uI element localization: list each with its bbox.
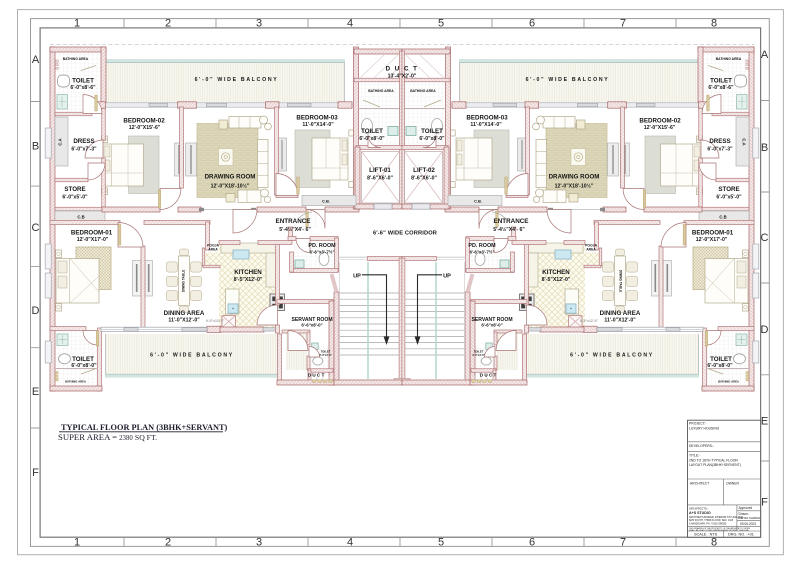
svg-text:2: 2	[165, 537, 171, 549]
svg-text:12'-0"X18'-10½": 12'-0"X18'-10½"	[555, 183, 594, 190]
svg-text:E: E	[32, 386, 39, 398]
svg-text:DRAWING ROOM: DRAWING ROOM	[549, 174, 600, 181]
svg-text:6'-0" WIDE BALCONY: 6'-0" WIDE BALCONY	[150, 353, 234, 359]
svg-text:TOILET: TOILET	[421, 128, 443, 135]
svg-text:LAYOUT PLAN(3BHK+SERVENT): LAYOUT PLAN(3BHK+SERVENT)	[689, 463, 741, 467]
svg-text:8'-5"X12'-0": 8'-5"X12'-0"	[542, 277, 571, 283]
svg-text:6'-0" WIDE BALCONY: 6'-0" WIDE BALCONY	[570, 353, 654, 359]
svg-text:ARCHITECTS:-: ARCHITECTS:-	[689, 506, 709, 510]
svg-text:BATHING AREA: BATHING AREA	[63, 57, 89, 61]
svg-text:ARCHITECT: ARCHITECT	[690, 481, 709, 485]
svg-text:OWNER: OWNER	[726, 481, 739, 485]
svg-text:DRESS: DRESS	[73, 138, 94, 145]
svg-text:PD. ROOM: PD. ROOM	[308, 243, 336, 249]
svg-text:BEDROOM-03: BEDROOM-03	[296, 115, 338, 122]
svg-text:1: 1	[74, 537, 80, 549]
svg-text:A: A	[32, 54, 40, 66]
svg-text:TOILET: TOILET	[710, 78, 732, 85]
svg-text:POOJA: POOJA	[585, 244, 597, 248]
svg-text:12'-0"X15'-6": 12'-0"X15'-6"	[129, 125, 161, 131]
svg-text:C.B: C.B	[77, 215, 84, 220]
svg-text:BEDROOM-02: BEDROOM-02	[639, 118, 681, 125]
svg-text:BATHING AREA: BATHING AREA	[65, 379, 86, 383]
svg-text:7: 7	[620, 537, 626, 549]
svg-text:TOILET: TOILET	[72, 356, 94, 363]
svg-text:6'-0"x7'-3": 6'-0"x7'-3"	[71, 147, 97, 153]
svg-text:DEVELOPERS:-: DEVELOPERS:-	[689, 444, 714, 448]
svg-text:SCALE : NTS: SCALE : NTS	[694, 533, 718, 537]
svg-text:13'-4"X2'-0": 13'-4"X2'-0"	[388, 74, 417, 80]
svg-text:AREA: AREA	[208, 248, 218, 252]
svg-text:D U C T: D U C T	[480, 373, 497, 378]
svg-text:7: 7	[620, 18, 626, 30]
svg-text:PROJECT:-: PROJECT:-	[689, 422, 706, 426]
svg-text:BATHING AREA: BATHING AREA	[410, 89, 436, 93]
svg-text:5: 5	[438, 537, 444, 549]
svg-text:3: 3	[256, 18, 262, 30]
svg-text:BEDROOM-03: BEDROOM-03	[466, 115, 508, 122]
svg-text:C.A: C.A	[742, 138, 747, 145]
svg-text:6'-0"x8'-6": 6'-0"x8'-6"	[70, 85, 96, 91]
svg-text:KITCHEN: KITCHEN	[542, 269, 570, 276]
svg-text:TOILET: TOILET	[361, 128, 383, 135]
svg-text:11'-0"X14'-0": 11'-0"X14'-0"	[470, 122, 502, 128]
svg-text:B/25 SOUTH, THIRD FLOOR, SEC.: B/25 SOUTH, THIRD FLOOR, SEC. 19-B	[689, 519, 733, 522]
svg-text:6'-0"x8'-6": 6'-0"x8'-6"	[708, 85, 734, 91]
svg-text:11'-0"X12'-0": 11'-0"X12'-0"	[168, 317, 200, 323]
svg-text:LIFT-02: LIFT-02	[413, 167, 435, 174]
svg-text:12'-0"X18'-10½": 12'-0"X18'-10½"	[211, 183, 250, 190]
svg-text:6'-0"x8'-0": 6'-0"x8'-0"	[71, 363, 97, 369]
svg-text:D U C T: D U C T	[386, 66, 419, 73]
svg-text:Drawn:: Drawn:	[739, 512, 749, 516]
svg-text:09.06.2023: 09.06.2023	[740, 522, 756, 526]
svg-text:6'-0"x7'-3": 6'-0"x7'-3"	[707, 147, 733, 153]
svg-text:6'-0"x5'-0": 6'-0"x5'-0"	[716, 195, 742, 201]
svg-text:POOJA: POOJA	[207, 244, 219, 248]
svg-text:D U C T: D U C T	[308, 373, 325, 378]
svg-text:6'-6" WIDE CORRIDOR: 6'-6" WIDE CORRIDOR	[373, 231, 437, 237]
svg-text:4: 4	[347, 18, 353, 30]
svg-text:UP: UP	[353, 274, 361, 280]
svg-text:4: 4	[347, 537, 353, 549]
svg-text:6'-6"x3'-7½": 6'-6"x3'-7½"	[469, 250, 494, 255]
svg-text:8'-6"X6'-0": 8'-6"X6'-0"	[411, 175, 437, 181]
svg-text:BEDROOM-02: BEDROOM-02	[123, 118, 165, 125]
svg-text:3: 3	[256, 537, 262, 549]
svg-text:LIFT-01: LIFT-01	[369, 167, 391, 174]
svg-text:F: F	[761, 497, 768, 509]
svg-text:DINING TABLE: DINING TABLE	[619, 270, 623, 292]
svg-text:6: 6	[529, 18, 535, 30]
svg-text:5: 5	[438, 18, 444, 30]
svg-text:BEDROOM-01: BEDROOM-01	[692, 230, 734, 237]
svg-text:BATHING AREA: BATHING AREA	[716, 57, 742, 61]
svg-text:B: B	[32, 141, 39, 153]
svg-text:DRESS: DRESS	[709, 138, 730, 145]
svg-text:TOILET: TOILET	[474, 350, 484, 354]
svg-text:ENTRANCE: ENTRANCE	[276, 218, 311, 225]
svg-text:C.B.: C.B.	[322, 198, 330, 203]
svg-text:1: 1	[74, 18, 80, 30]
svg-text:8: 8	[711, 18, 717, 30]
svg-text:DRAWING ROOM: DRAWING ROOM	[205, 174, 256, 181]
svg-text:TYPICAL FLOOR PLAN (3BHK+SERVA: TYPICAL FLOOR PLAN (3BHK+SERVANT)	[61, 423, 228, 432]
svg-text:TOILET: TOILET	[72, 78, 94, 85]
svg-text:6: 6	[529, 537, 535, 549]
svg-text:DRG. NO. :+01: DRG. NO. :+01	[728, 533, 754, 537]
svg-text:UP: UP	[443, 274, 451, 280]
svg-text:8'-5"X12'-0": 8'-5"X12'-0"	[234, 277, 263, 283]
svg-text:CHANDIGARH, PH. 70162 954555: CHANDIGARH, PH. 70162 954555	[689, 522, 727, 525]
svg-text:D: D	[32, 305, 40, 317]
svg-text:2ND TO 18TH TYPICAL FLOOR: 2ND TO 18TH TYPICAL FLOOR	[689, 458, 738, 462]
svg-text:C.B.: C.B.	[474, 198, 482, 203]
svg-text:12'-0"X17'-0": 12'-0"X17'-0"	[77, 237, 109, 243]
svg-text:E: E	[761, 416, 768, 428]
svg-text:BATHING AREA: BATHING AREA	[718, 379, 739, 383]
svg-text:BEDROOM-01: BEDROOM-01	[71, 230, 113, 237]
svg-text:2: 2	[165, 18, 171, 30]
svg-text:6'-6"x3'-7½": 6'-6"x3'-7½"	[309, 250, 334, 255]
svg-text:DINING TABLE: DINING TABLE	[182, 270, 186, 292]
svg-text:DINING AREA: DINING AREA	[164, 310, 205, 317]
svg-text:TOILET: TOILET	[710, 356, 732, 363]
svg-text:AREA: AREA	[586, 248, 596, 252]
svg-text:A+S STUDIO: A+S STUDIO	[689, 511, 711, 515]
svg-text:C.B: C.B	[719, 215, 726, 220]
svg-text:8'-6"X6'-0": 8'-6"X6'-0"	[367, 175, 393, 181]
svg-text:D: D	[761, 324, 769, 336]
svg-text:C: C	[32, 222, 40, 234]
svg-text:ARCHITECTURINNER, INTERIOR STY: ARCHITECTURINNER, INTERIOR STYLING AND	[689, 516, 743, 519]
svg-text:6'-0"x5'-0": 6'-0"x5'-0"	[62, 195, 88, 201]
svg-text:6'-0" WIDE BALCONY: 6'-0" WIDE BALCONY	[526, 77, 610, 83]
svg-text:STORE: STORE	[64, 186, 85, 193]
svg-text:6'-0"x8'-0": 6'-0"x8'-0"	[359, 136, 385, 142]
svg-text:B: B	[761, 142, 768, 154]
svg-text:SUPER AREA = 2380 SQ FT.: SUPER AREA = 2380 SQ FT.	[58, 432, 157, 442]
svg-text:5'-4½"X4'- 6": 5'-4½"X4'- 6"	[493, 226, 525, 233]
svg-text:9'-0"x12'-0": 9'-0"x12'-0"	[580, 319, 599, 323]
svg-text:6'-0" WIDE BALCONY: 6'-0" WIDE BALCONY	[195, 77, 279, 83]
svg-text:11'-0"X14'-0": 11'-0"X14'-0"	[302, 122, 334, 128]
svg-text:TITLE:-: TITLE:-	[689, 453, 700, 457]
svg-text:TOILET: TOILET	[321, 350, 331, 354]
svg-text:F: F	[32, 467, 39, 479]
svg-text:C: C	[761, 232, 769, 244]
svg-text:STORE: STORE	[718, 186, 739, 193]
svg-text:LUXURY HOUSING: LUXURY HOUSING	[689, 427, 720, 431]
svg-text:12'-0"X15'-6": 12'-0"X15'-6"	[644, 125, 676, 131]
svg-text:DINING AREA: DINING AREA	[600, 310, 641, 317]
svg-text:BATHING AREA: BATHING AREA	[368, 89, 394, 93]
svg-text:C.A: C.A	[58, 138, 63, 145]
svg-text:Approved: Approved	[739, 506, 753, 510]
svg-text:12'-0"X17'-0": 12'-0"X17'-0"	[696, 237, 728, 243]
svg-text:11'-0"X12'-0": 11'-0"X12'-0"	[604, 317, 636, 323]
svg-text:9'-0"x12'-0": 9'-0"x12'-0"	[206, 319, 225, 323]
svg-text:6'-6"x8'-0": 6'-6"x8'-0"	[481, 322, 502, 327]
svg-text:KITCHEN: KITCHEN	[234, 269, 262, 276]
svg-text:6'-0"x8'-0": 6'-0"x8'-0"	[419, 136, 445, 142]
svg-text:8: 8	[711, 537, 717, 549]
svg-text:PD. ROOM: PD. ROOM	[468, 243, 496, 249]
svg-text:5'-4½"X4'- 6": 5'-4½"X4'- 6"	[279, 226, 311, 233]
svg-text:6'-0"x8'-0": 6'-0"x8'-0"	[707, 363, 733, 369]
svg-text:ENTRANCE: ENTRANCE	[494, 218, 529, 225]
svg-text:A: A	[761, 49, 769, 61]
svg-text:6'-6"x8'-0": 6'-6"x8'-0"	[301, 322, 322, 327]
